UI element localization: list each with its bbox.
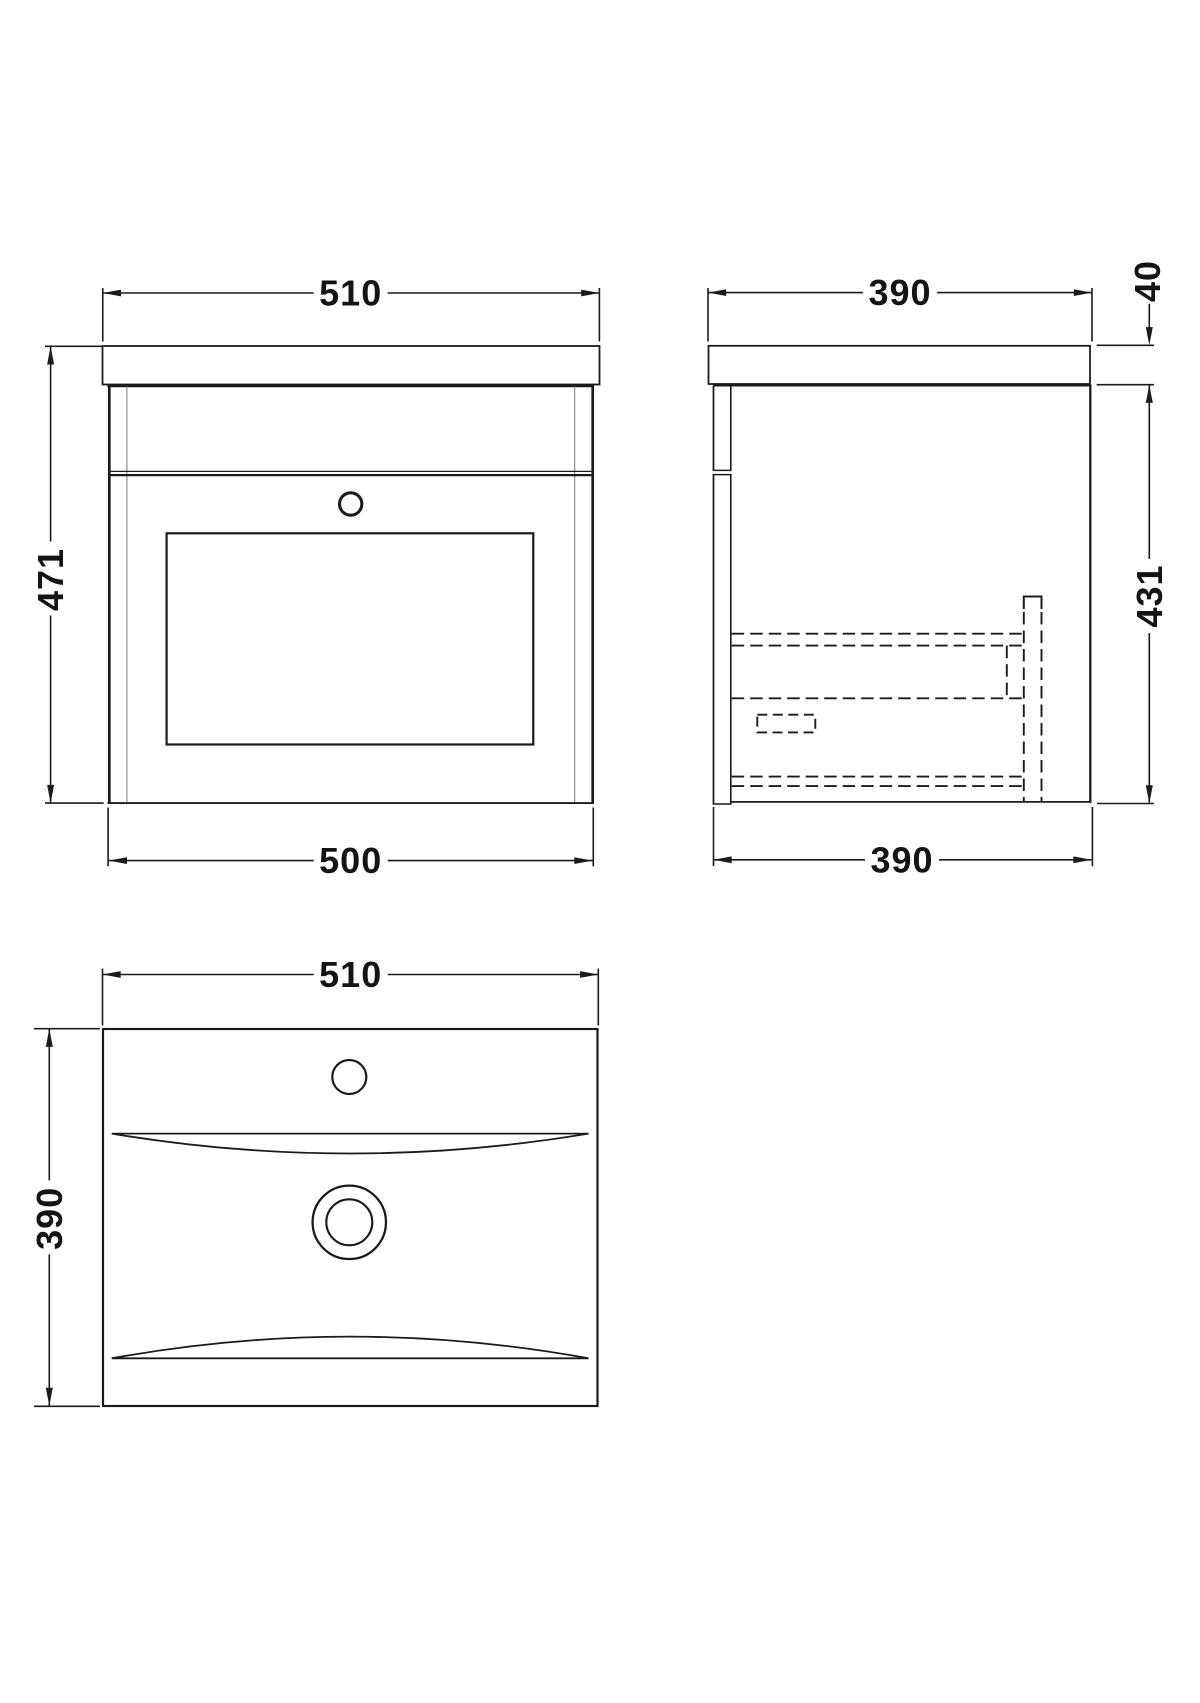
svg-text:510: 510 <box>319 273 382 314</box>
svg-text:390: 390 <box>870 839 933 880</box>
svg-text:40: 40 <box>1127 260 1168 302</box>
svg-text:390: 390 <box>29 1187 70 1250</box>
svg-text:500: 500 <box>319 840 382 881</box>
svg-text:471: 471 <box>30 548 71 611</box>
svg-text:390: 390 <box>868 272 931 313</box>
svg-text:431: 431 <box>1129 564 1170 627</box>
svg-text:510: 510 <box>319 954 382 995</box>
